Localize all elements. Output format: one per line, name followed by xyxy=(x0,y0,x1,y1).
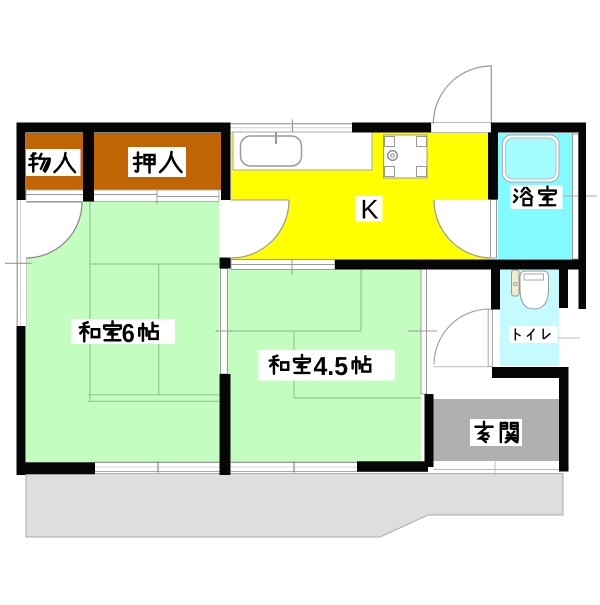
svg-text:K: K xyxy=(360,195,378,225)
svg-text:6: 6 xyxy=(122,318,135,348)
svg-text:4.5: 4.5 xyxy=(314,351,349,381)
